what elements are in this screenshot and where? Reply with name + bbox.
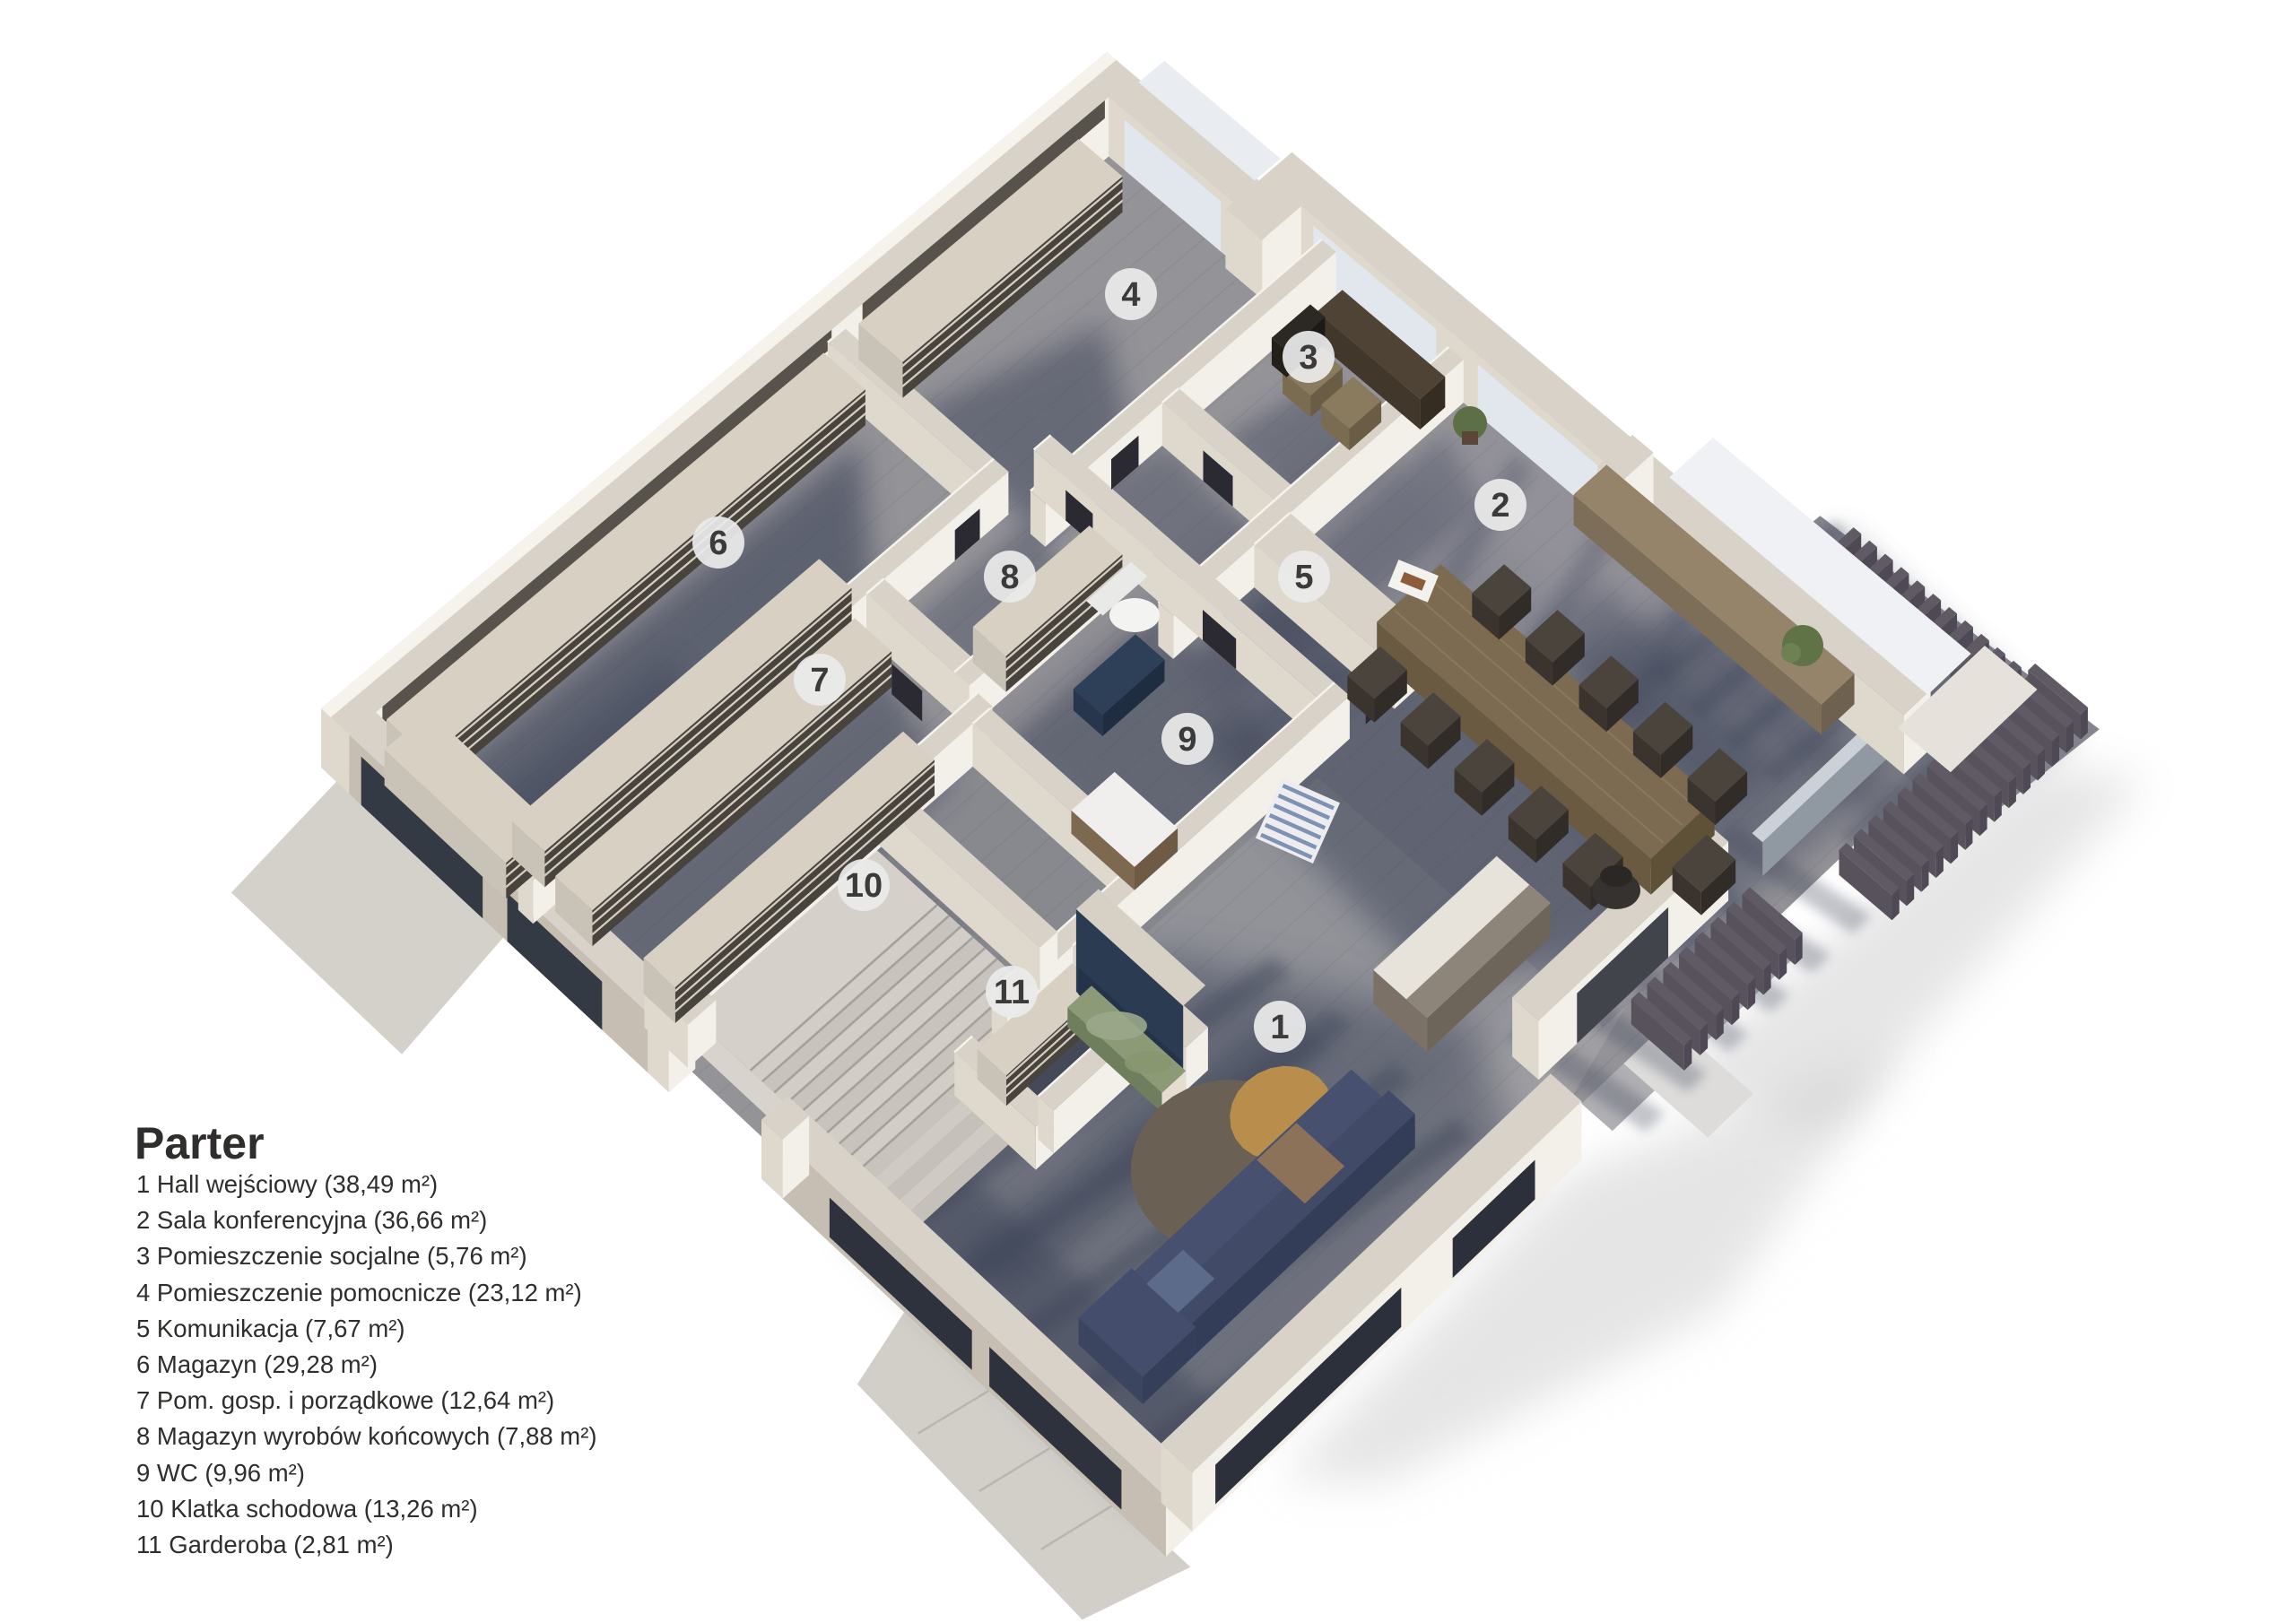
svg-text:6 Magazyn (29,28 m²): 6 Magazyn (29,28 m²) <box>136 1350 378 1378</box>
svg-text:5 Komunikacja (7,67 m²): 5 Komunikacja (7,67 m²) <box>136 1315 405 1342</box>
svg-text:9 WC (9,96 m²): 9 WC (9,96 m²) <box>136 1459 305 1487</box>
svg-text:10 Klatka schodowa (13,26 m²): 10 Klatka schodowa (13,26 m²) <box>136 1495 478 1523</box>
svg-text:1 Hall wejściowy (38,49 m²): 1 Hall wejściowy (38,49 m²) <box>136 1170 438 1198</box>
svg-text:Parter: Parter <box>135 1118 265 1168</box>
svg-text:6: 6 <box>709 525 727 562</box>
svg-text:3 Pomieszczenie socjalne (5,76: 3 Pomieszczenie socjalne (5,76 m²) <box>136 1242 527 1270</box>
svg-text:3: 3 <box>1299 339 1318 377</box>
svg-text:5: 5 <box>1294 559 1313 596</box>
svg-text:2: 2 <box>1491 487 1509 525</box>
svg-text:11: 11 <box>994 974 1030 1011</box>
svg-text:10: 10 <box>845 867 883 905</box>
svg-text:7 Pom. gosp. i porządkowe (12,: 7 Pom. gosp. i porządkowe (12,64 m²) <box>136 1386 554 1414</box>
svg-text:4: 4 <box>1121 276 1140 314</box>
svg-text:11 Garderoba (2,81 m²): 11 Garderoba (2,81 m²) <box>136 1531 394 1558</box>
svg-text:2 Sala konferencyjna (36,66 m²: 2 Sala konferencyjna (36,66 m²) <box>136 1206 487 1234</box>
svg-text:8 Magazyn wyrobów końcowych (7: 8 Magazyn wyrobów końcowych (7,88 m²) <box>136 1422 597 1450</box>
svg-text:1: 1 <box>1270 1009 1289 1046</box>
svg-text:9: 9 <box>1178 721 1196 759</box>
svg-text:4 Pomieszczenie pomocnicze (23: 4 Pomieszczenie pomocnicze (23,12 m²) <box>136 1279 582 1306</box>
svg-text:7: 7 <box>810 662 829 699</box>
svg-text:8: 8 <box>1000 559 1019 596</box>
